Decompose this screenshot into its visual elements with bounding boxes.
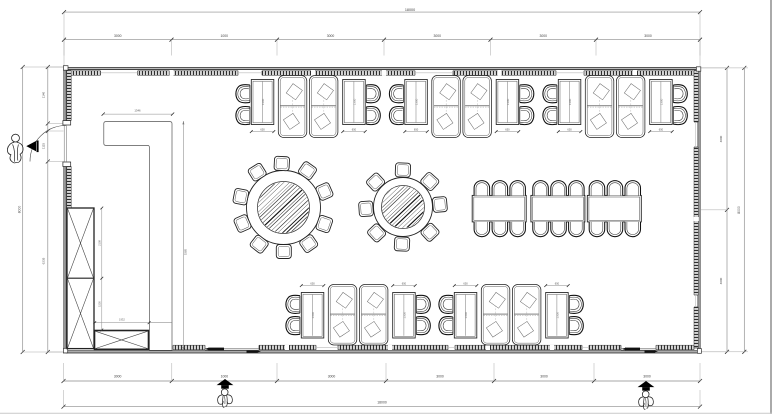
svg-text:3000: 3000 [539,34,547,38]
svg-text:3000: 3000 [433,34,441,38]
svg-text:5385: 5385 [184,248,188,255]
svg-text:3000: 3000 [114,34,122,38]
svg-text:8000: 8000 [737,206,741,214]
svg-text:650: 650 [402,281,407,285]
svg-text:4000: 4000 [719,135,723,142]
svg-text:650: 650 [463,281,468,285]
svg-text:3000: 3000 [644,34,652,38]
svg-text:650: 650 [352,127,357,131]
svg-text:8000: 8000 [17,206,21,214]
svg-text:3000: 3000 [328,375,336,379]
svg-text:18000: 18000 [405,8,415,12]
svg-text:1115: 1115 [42,143,46,150]
svg-text:3000: 3000 [114,375,122,379]
svg-text:650: 650 [260,127,265,131]
svg-text:3000: 3000 [436,375,444,379]
svg-text:4000: 4000 [719,277,723,284]
svg-text:1550: 1550 [97,301,101,307]
svg-text:3000: 3000 [327,34,335,38]
svg-text:650: 650 [310,281,315,285]
svg-text:650: 650 [555,281,560,285]
svg-text:3000: 3000 [643,375,651,379]
svg-text:650: 650 [505,127,510,131]
svg-text:650: 650 [567,127,572,131]
svg-text:1346: 1346 [134,109,141,113]
svg-text:650: 650 [659,127,664,131]
svg-text:2108: 2108 [97,240,101,246]
svg-text:18000: 18000 [377,401,387,405]
svg-text:1932: 1932 [119,317,125,321]
svg-text:6235: 6235 [42,257,46,264]
svg-text:3000: 3000 [540,375,548,379]
svg-text:650: 650 [414,127,419,131]
svg-text:1000: 1000 [221,375,229,379]
svg-text:1140: 1140 [42,91,46,98]
svg-text:1000: 1000 [220,34,228,38]
